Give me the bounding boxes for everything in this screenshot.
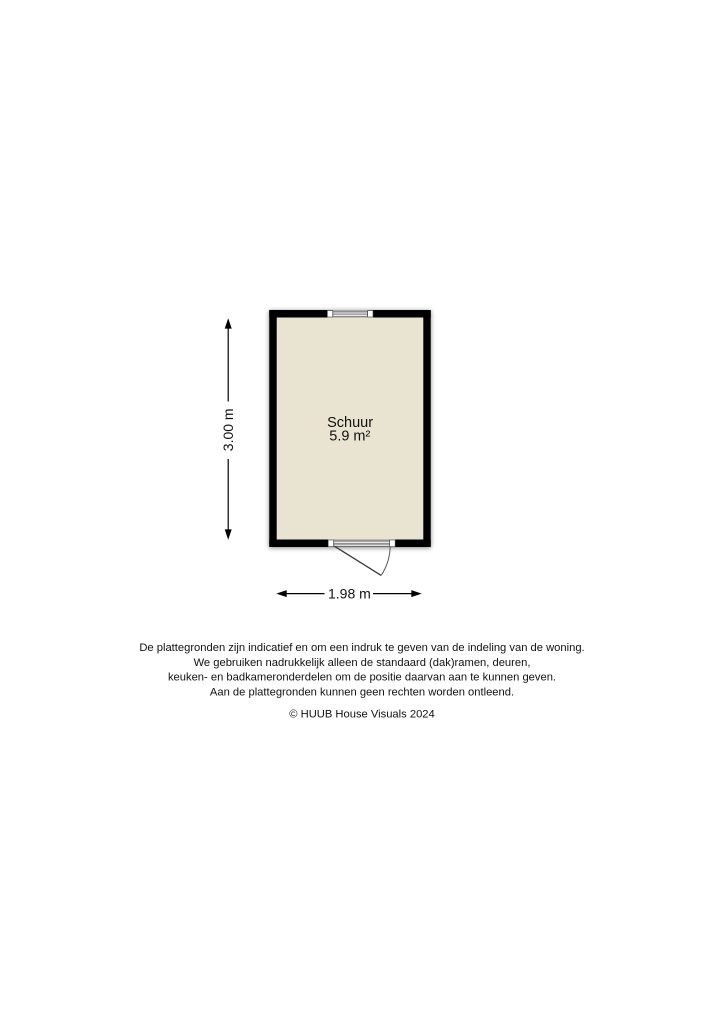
svg-text:De plattegronden zijn indicati: De plattegronden zijn indicatief en om e… [139, 642, 584, 654]
svg-text:We gebruiken nadrukkelijk alle: We gebruiken nadrukkelijk alleen de stan… [194, 657, 531, 669]
svg-text:keuken- en badkameronderdelen: keuken- en badkameronderdelen om de posi… [168, 672, 556, 684]
svg-text:Aan de plattegronden kunnen ge: Aan de plattegronden kunnen geen rechten… [210, 687, 514, 699]
svg-text:1.98 m: 1.98 m [328, 585, 371, 601]
svg-text:© HUUB House Visuals 2024: © HUUB House Visuals 2024 [289, 709, 434, 721]
svg-text:3.00 m: 3.00 m [220, 408, 236, 451]
svg-text:5.9 m²: 5.9 m² [329, 429, 370, 445]
